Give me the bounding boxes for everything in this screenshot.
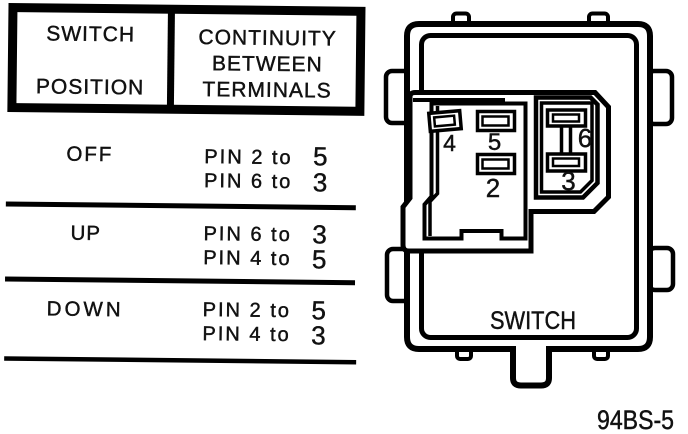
- svg-text:5: 5: [488, 129, 501, 156]
- svg-text:PIN 4 to: PIN 4 to: [202, 323, 290, 346]
- svg-text:5: 5: [312, 244, 329, 274]
- svg-text:PIN 4 to: PIN 4 to: [203, 247, 291, 270]
- svg-text:PIN 6 to: PIN 6 to: [204, 170, 292, 193]
- svg-text:PIN 2 to: PIN 2 to: [203, 299, 291, 322]
- svg-text:3: 3: [561, 166, 575, 196]
- svg-text:SWITCH: SWITCH: [490, 307, 576, 335]
- svg-text:SWITCH: SWITCH: [46, 22, 135, 46]
- svg-text:94BS-5: 94BS-5: [597, 405, 674, 434]
- svg-text:2: 2: [486, 173, 500, 203]
- svg-text:TERMINALS: TERMINALS: [202, 78, 331, 102]
- svg-text:CONTINUITY: CONTINUITY: [198, 26, 337, 50]
- svg-text:3: 3: [313, 167, 330, 197]
- svg-text:6: 6: [578, 123, 592, 153]
- svg-text:UP: UP: [70, 222, 101, 245]
- svg-text:4: 4: [443, 130, 456, 156]
- svg-text:OFF: OFF: [66, 143, 113, 167]
- svg-text:DOWN: DOWN: [47, 297, 124, 321]
- svg-text:POSITION: POSITION: [36, 75, 145, 99]
- svg-text:3: 3: [311, 320, 328, 350]
- svg-text:PIN 6 to: PIN 6 to: [203, 223, 291, 246]
- svg-text:PIN 2 to: PIN 2 to: [204, 146, 292, 169]
- svg-text:BETWEEN: BETWEEN: [212, 52, 323, 76]
